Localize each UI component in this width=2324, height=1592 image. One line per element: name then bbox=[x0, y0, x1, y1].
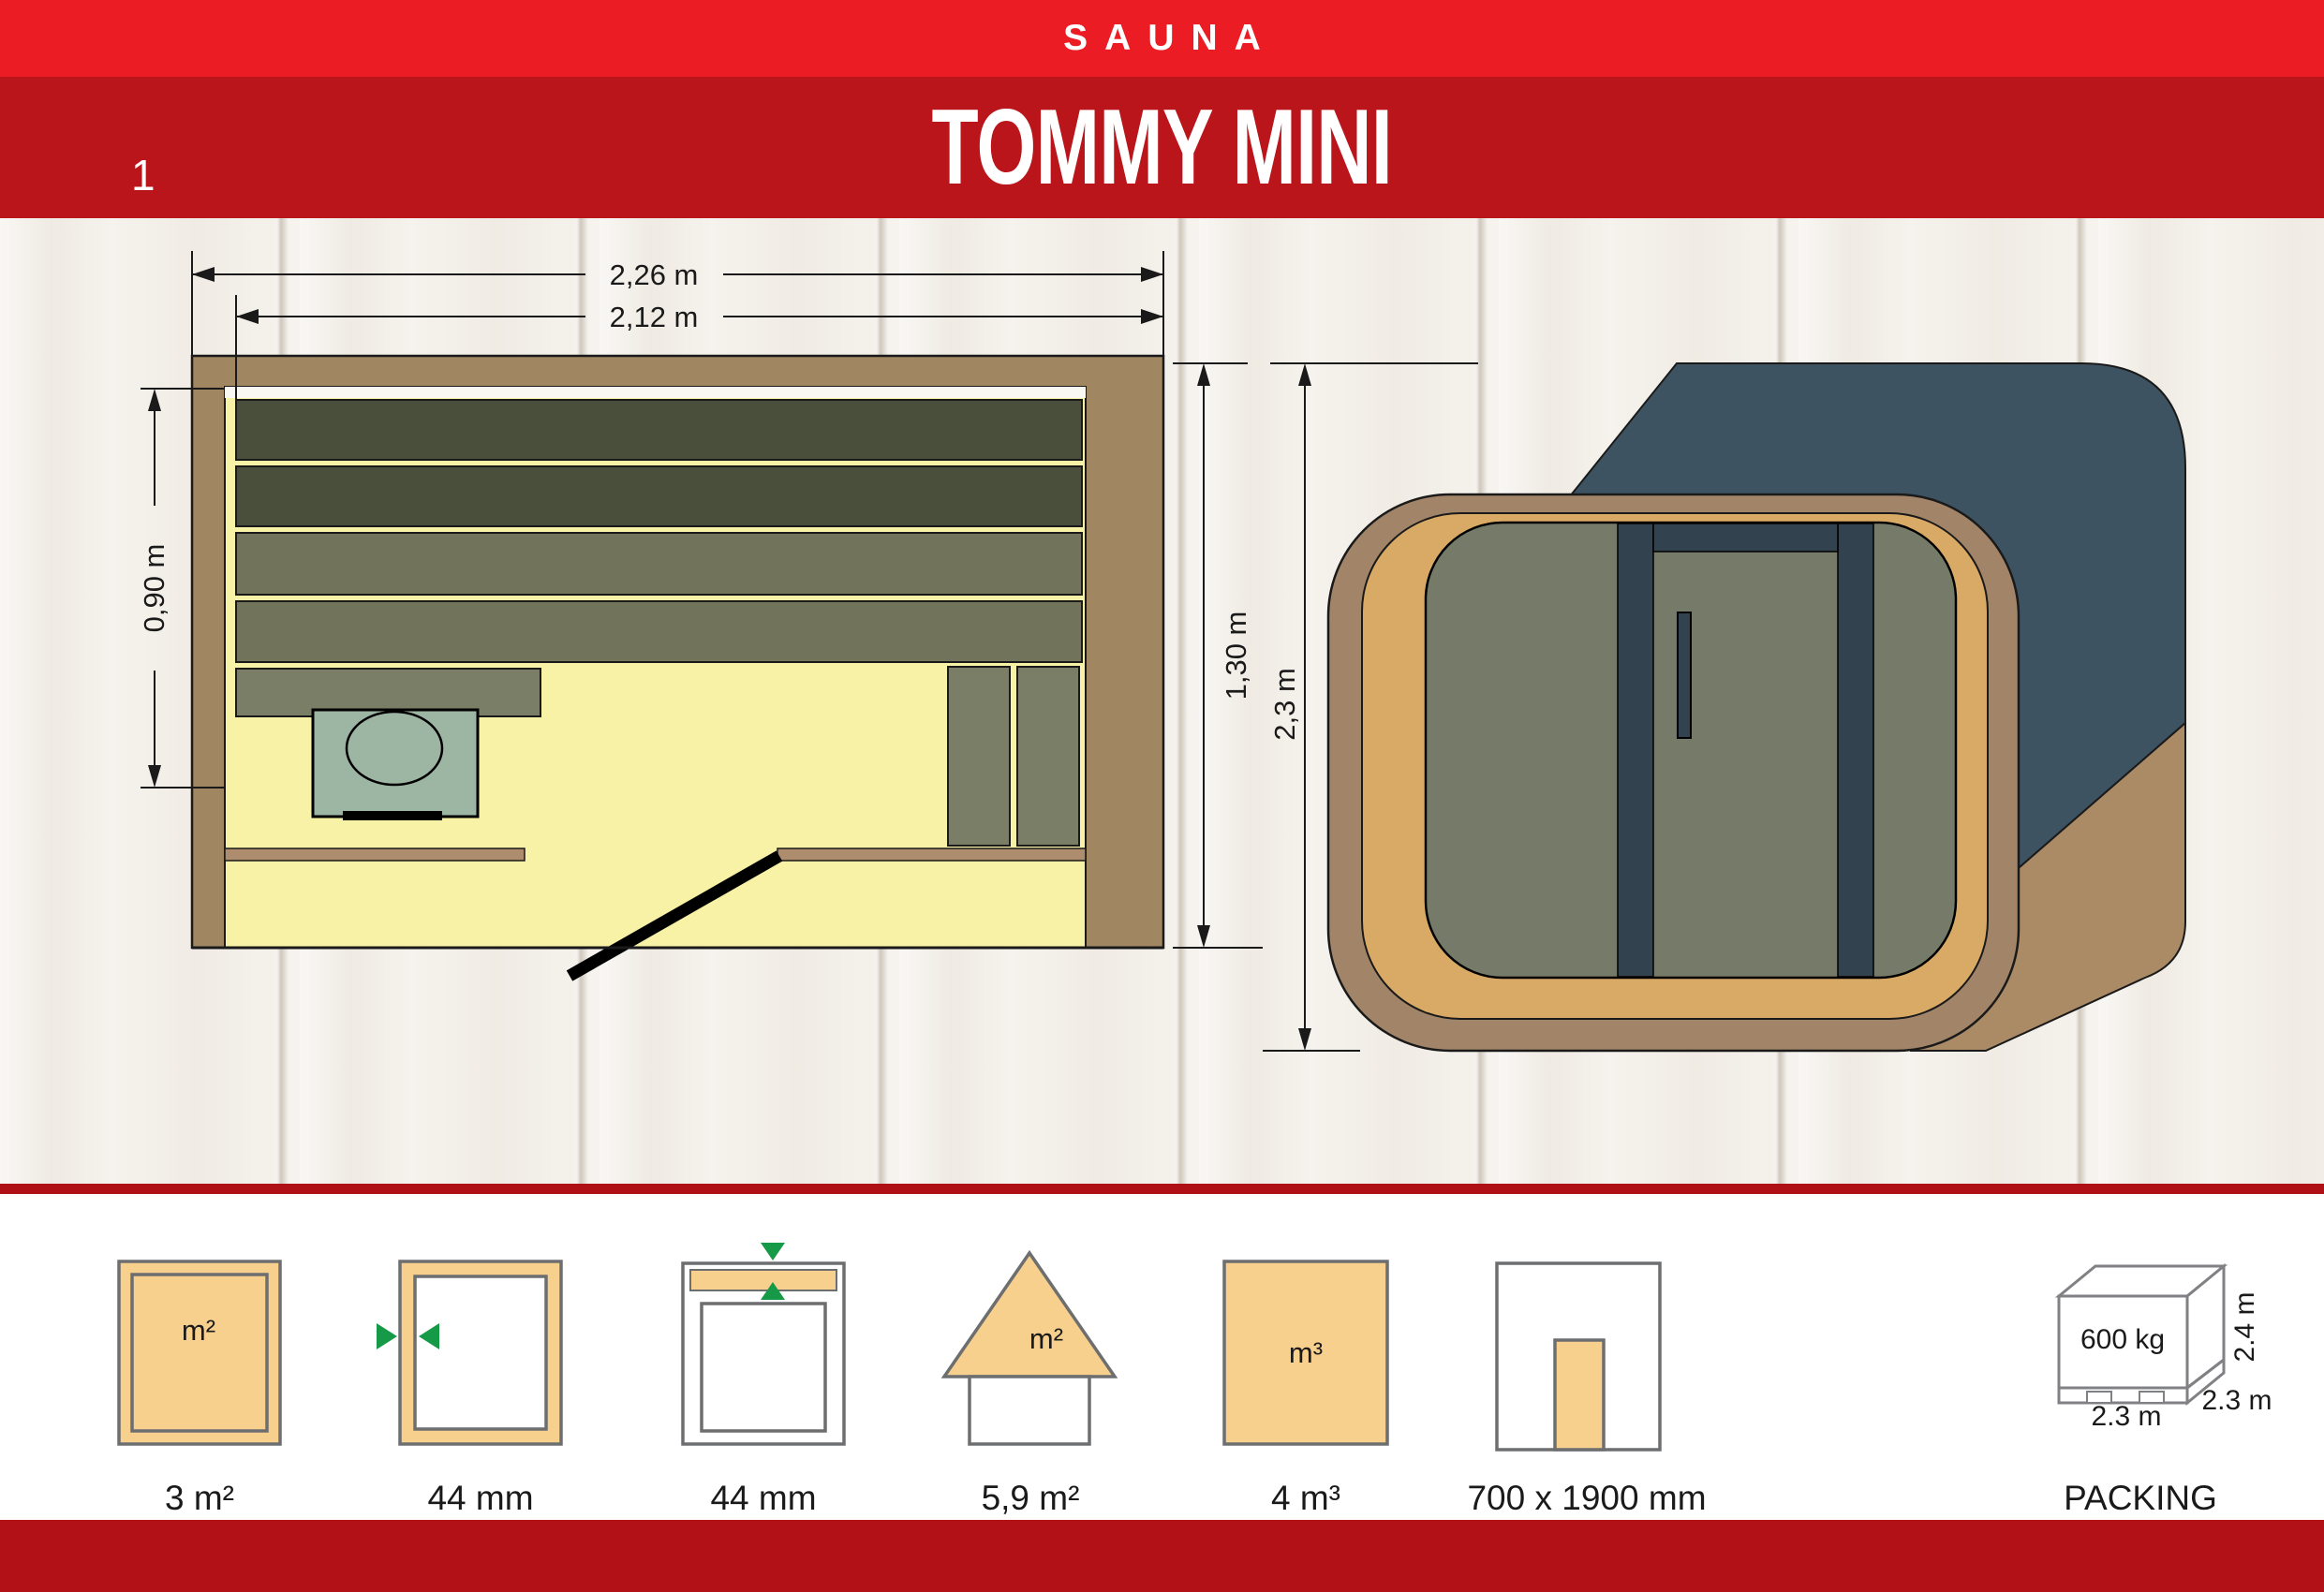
green-arrow-down-icon bbox=[761, 1243, 785, 1260]
partition-wall-right bbox=[777, 848, 1086, 861]
floor-plan bbox=[192, 356, 1163, 976]
packing-weight: 600 kg bbox=[2080, 1324, 2165, 1355]
spec-wall-thickness: 44 mm bbox=[377, 1261, 561, 1517]
wall-thickness-icon bbox=[377, 1261, 561, 1444]
dim-inner-depth-label: 1,30 m bbox=[1220, 612, 1252, 700]
roof-area-symbol: m² bbox=[1029, 1322, 1063, 1355]
packing-height: 2.4 m bbox=[2229, 1291, 2260, 1362]
arrow-up-icon bbox=[148, 389, 161, 411]
dim-cube-height-label: 2,3 m bbox=[1268, 668, 1301, 741]
wall-thickness-value: 44 mm bbox=[427, 1479, 533, 1517]
volume-value: 4 m³ bbox=[1271, 1479, 1340, 1517]
bench-slat-2 bbox=[236, 466, 1082, 526]
area-icon bbox=[119, 1261, 280, 1444]
door-top-rail bbox=[1653, 523, 1838, 552]
cube-3d-view: 2,3 m bbox=[1263, 363, 2185, 1051]
roof-thickness-icon bbox=[683, 1243, 844, 1444]
diagrams-overlay: 2,26 m 2,12 m 0,90 m 1,30 bbox=[0, 0, 2324, 1592]
door-size-icon bbox=[1497, 1263, 1660, 1450]
arrow-down-icon bbox=[1298, 1028, 1311, 1051]
packing-label: PACKING bbox=[2064, 1479, 2217, 1517]
arrow-right-icon bbox=[1141, 309, 1163, 324]
arrow-right-icon bbox=[1141, 267, 1163, 282]
bench-slat-4 bbox=[236, 601, 1082, 662]
dimension-inner-depth: 1,30 m bbox=[1173, 363, 1263, 948]
packing-depth: 2.3 m bbox=[2201, 1385, 2272, 1416]
floor-area-value: 3 m² bbox=[165, 1479, 234, 1517]
arrow-down-icon bbox=[1197, 925, 1210, 948]
door-handle bbox=[1678, 612, 1691, 738]
dim-outer-width-label: 2,26 m bbox=[610, 258, 699, 291]
door-size-value: 700 x 1900 mm bbox=[1467, 1479, 1706, 1517]
seat-board-1 bbox=[948, 667, 1010, 846]
stove bbox=[313, 710, 478, 820]
plan-top-gap bbox=[225, 387, 1086, 398]
cube-front-glass bbox=[1426, 523, 1956, 978]
arrow-down-icon bbox=[148, 765, 161, 788]
volume-symbol: m³ bbox=[1289, 1336, 1323, 1369]
spec-packing: 600 kg 2.4 m 2.3 m 2.3 m PACKING bbox=[2059, 1266, 2272, 1517]
bench-slat-3 bbox=[236, 533, 1082, 595]
spec-door-size: 700 x 1900 mm bbox=[1467, 1263, 1706, 1517]
spec-volume: m³ 4 m³ bbox=[1224, 1261, 1387, 1517]
area-symbol: m² bbox=[182, 1314, 215, 1347]
dim-inner-width-label: 2,12 m bbox=[610, 301, 699, 333]
glass-mullion-right bbox=[1838, 523, 1873, 977]
arrow-up-icon bbox=[1298, 363, 1311, 386]
stove-base bbox=[343, 811, 442, 820]
arrow-left-icon bbox=[192, 267, 215, 282]
bench-slat-1 bbox=[236, 400, 1082, 460]
arrow-left-icon bbox=[236, 309, 259, 324]
spec-roof-area: m² 5,9 m² bbox=[944, 1253, 1115, 1517]
partition-wall-left bbox=[225, 848, 525, 861]
green-arrow-right-icon bbox=[377, 1323, 397, 1349]
spec-roof-thickness: 44 mm bbox=[683, 1243, 844, 1517]
glass-mullion-left bbox=[1618, 523, 1653, 977]
spec-icon-row: m² 3 m² 44 mm 44 mm bbox=[119, 1243, 2272, 1517]
packing-width: 2.3 m bbox=[2091, 1401, 2161, 1432]
spec-floor-area: m² 3 m² bbox=[119, 1261, 280, 1517]
dim-bench-depth-label: 0,90 m bbox=[138, 544, 170, 633]
roof-thickness-value: 44 mm bbox=[710, 1479, 816, 1517]
roof-area-value: 5,9 m² bbox=[982, 1479, 1080, 1517]
arrow-up-icon bbox=[1197, 363, 1210, 386]
seat-board-2 bbox=[1017, 667, 1079, 846]
stove-body bbox=[313, 710, 478, 817]
